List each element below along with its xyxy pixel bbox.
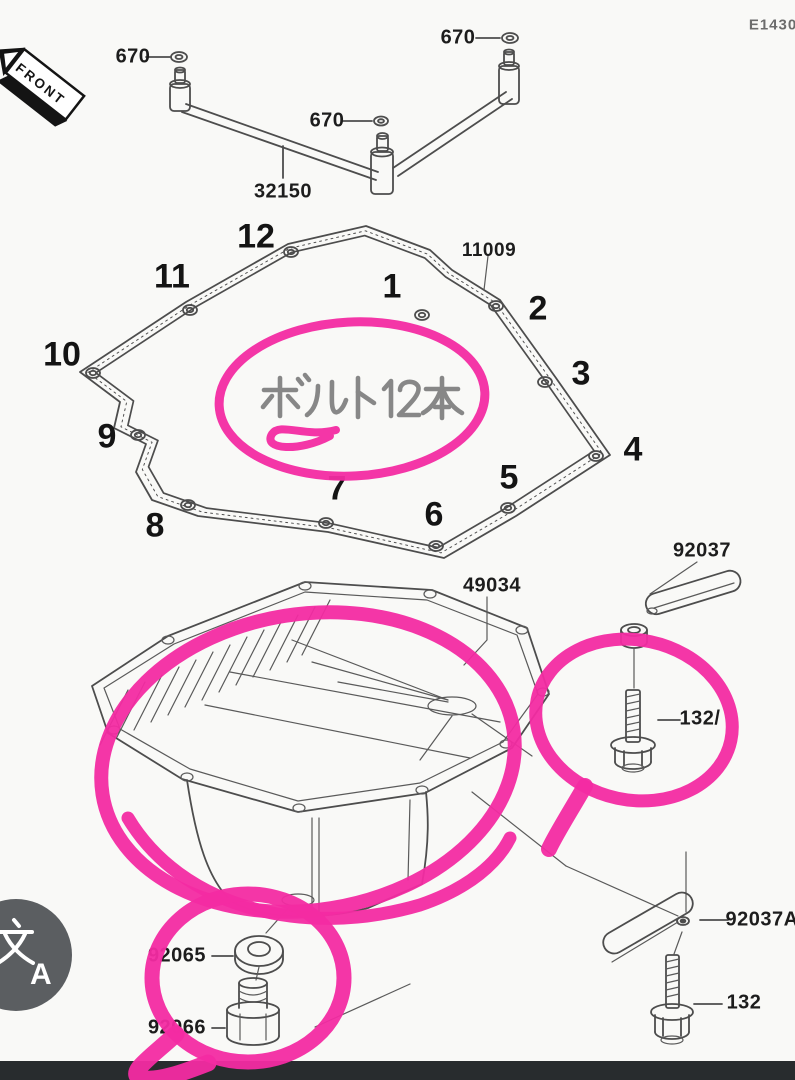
part-label-92065: 92065 <box>148 945 206 968</box>
part-label-49034: 49034 <box>463 575 521 598</box>
washer-92065 <box>212 936 283 974</box>
parts-diagram-page: FRONT <box>0 0 795 1080</box>
clamp-92037 <box>621 562 743 688</box>
part-label-92066: 92066 <box>148 1017 206 1040</box>
part-label-670-left: 670 <box>116 46 151 69</box>
page-code: E1430 <box>749 17 795 34</box>
part-label-32150: 32150 <box>254 181 312 204</box>
gasket-pos-2: 2 <box>529 290 548 329</box>
bolt-132-lower <box>651 955 722 1044</box>
part-label-92037: 92037 <box>673 540 731 563</box>
bolt-132-upper <box>611 690 680 772</box>
front-direction-tag: FRONT <box>0 35 87 130</box>
gasket-pos-10: 10 <box>43 336 81 375</box>
gasket-pos-7: 7 <box>328 470 347 509</box>
part-label-670-right: 670 <box>441 27 476 50</box>
gasket-pos-3: 3 <box>572 355 591 394</box>
part-label-92037A: 92037A <box>725 909 795 932</box>
part-label-670-mid: 670 <box>310 110 345 133</box>
part-label-132-upper: 132/ <box>680 708 721 731</box>
clamp-92037A <box>566 852 728 962</box>
gasket-pos-6: 6 <box>425 496 444 535</box>
translate-icon-letter: A <box>30 958 52 991</box>
part-label-132-lower: 132 <box>727 992 762 1015</box>
gasket-pos-1: 1 <box>383 268 402 307</box>
pan-flange-holes <box>108 582 549 812</box>
gasket-pos-9: 9 <box>98 418 117 457</box>
pan-interior-lines <box>205 640 532 760</box>
gasket-pos-5: 5 <box>500 459 519 498</box>
gasket-pos-8: 8 <box>146 507 165 546</box>
drain-plug-92066 <box>212 967 279 1045</box>
gasket-pos-12: 12 <box>237 218 275 257</box>
gasket-pos-4: 4 <box>624 431 643 470</box>
part-label-11009: 11009 <box>462 240 516 262</box>
gasket-pos-11: 11 <box>154 258 190 297</box>
